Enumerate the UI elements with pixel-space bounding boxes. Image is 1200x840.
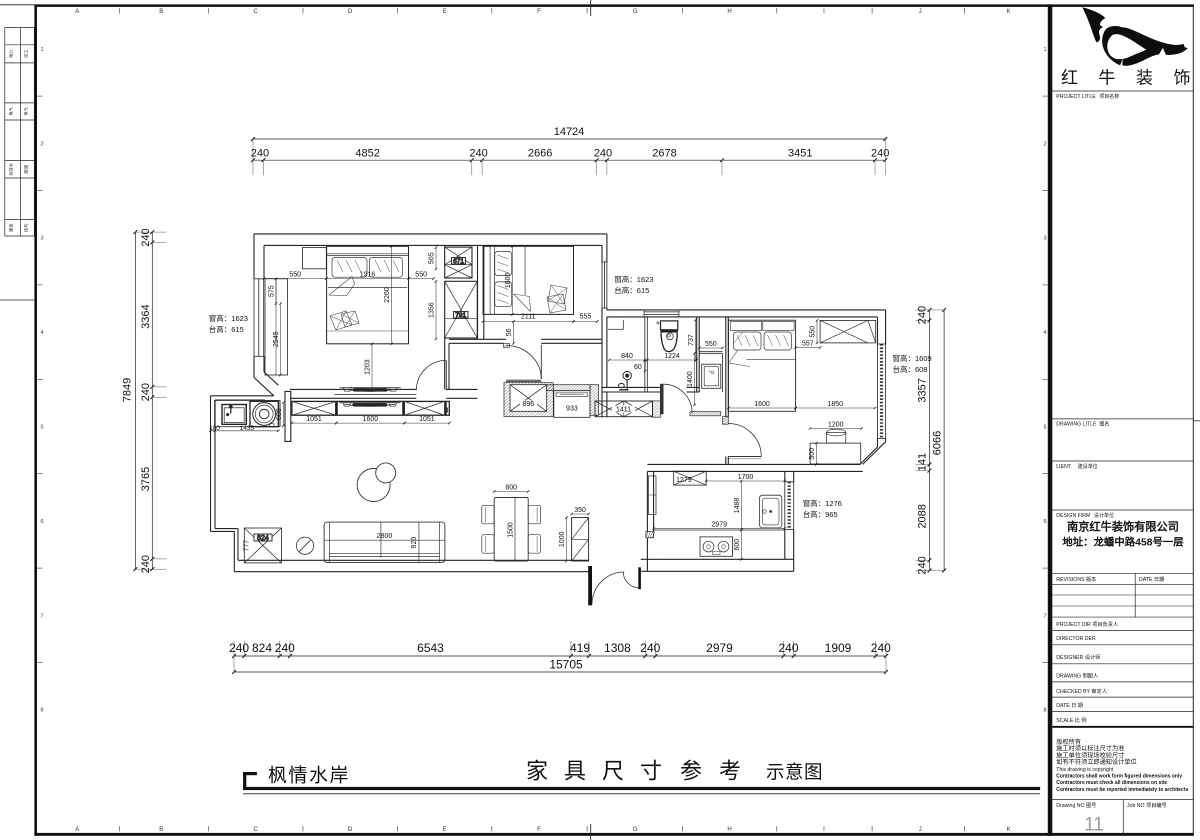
svg-text:地址：龙蟠中路458号一层: 地址：龙蟠中路458号一层 (1062, 536, 1184, 549)
svg-text:575: 575 (269, 285, 276, 297)
svg-text:K: K (1007, 827, 1011, 833)
svg-text:800: 800 (505, 485, 517, 492)
svg-text:F: F (537, 9, 541, 15)
svg-text:如有不符须立即通知设计单位: 如有不符须立即通知设计单位 (1056, 758, 1136, 766)
svg-text:DESIGNER 设计师: DESIGNER 设计师 (1056, 653, 1100, 661)
svg-text:505: 505 (429, 252, 436, 264)
svg-text:240: 240 (140, 228, 152, 246)
svg-text:7: 7 (41, 613, 44, 619)
svg-text:2979: 2979 (711, 521, 727, 528)
svg-text:2260: 2260 (384, 287, 391, 303)
svg-text:2: 2 (41, 141, 44, 147)
svg-text:1400: 1400 (687, 371, 694, 387)
svg-text:8: 8 (41, 708, 44, 714)
svg-text:1000: 1000 (559, 531, 566, 547)
svg-text:240: 240 (275, 641, 295, 655)
svg-text:C: C (254, 9, 259, 15)
svg-text:DATE 日 期: DATE 日 期 (1056, 702, 1083, 709)
svg-text:J: J (919, 827, 922, 833)
svg-text:1916: 1916 (360, 272, 376, 279)
svg-text:寸: 寸 (640, 759, 662, 784)
svg-text:DRAWING LITLE: DRAWING LITLE (1056, 422, 1097, 428)
svg-text:1909: 1909 (825, 641, 852, 655)
svg-text:4852: 4852 (355, 148, 379, 160)
svg-text:1600: 1600 (754, 401, 770, 408)
svg-text:7849: 7849 (121, 378, 133, 402)
svg-text:737: 737 (688, 334, 695, 346)
svg-text:台高：615: 台高：615 (209, 324, 244, 334)
svg-text:竣工: 竣工 (22, 50, 29, 58)
svg-text:Job NO 项目编号: Job NO 项目编号 (1127, 801, 1167, 809)
svg-text:550: 550 (810, 326, 817, 338)
svg-text:南京红牛装饰有限公司: 南京红牛装饰有限公司 (1067, 520, 1179, 534)
svg-text:240: 240 (594, 148, 612, 160)
svg-text:窗高：1609: 窗高：1609 (893, 353, 932, 363)
svg-text:933: 933 (566, 406, 578, 413)
svg-text:920: 920 (411, 537, 418, 549)
svg-text:2800: 2800 (377, 533, 393, 540)
svg-text:896: 896 (522, 401, 534, 408)
svg-text:3765: 3765 (140, 467, 152, 491)
svg-text:550: 550 (415, 272, 427, 279)
svg-text:2111: 2111 (521, 314, 536, 321)
svg-text:3: 3 (1043, 236, 1046, 242)
svg-text:1200: 1200 (828, 422, 844, 429)
svg-text:550: 550 (705, 341, 717, 348)
svg-text:777: 777 (244, 540, 251, 552)
svg-text:窗高：1623: 窗高：1623 (209, 313, 248, 323)
svg-text:电力: 电力 (8, 50, 15, 58)
svg-text:419: 419 (570, 641, 590, 655)
svg-text:240: 240 (871, 148, 889, 160)
svg-text:1700: 1700 (738, 474, 754, 481)
svg-text:5: 5 (41, 425, 44, 431)
svg-text:8: 8 (1043, 708, 1046, 714)
svg-text:240: 240 (871, 641, 891, 655)
svg-text:Drawing NO 图号: Drawing NO 图号 (1056, 802, 1096, 809)
svg-text:G: G (633, 827, 638, 833)
svg-text:B: B (159, 9, 163, 15)
svg-text:PROJECT DIR 项目负责人: PROJECT DIR 项目负责人 (1056, 620, 1118, 628)
svg-text:J: J (919, 9, 922, 15)
svg-text:B: B (159, 827, 163, 833)
svg-text:240: 240 (140, 555, 152, 573)
svg-text:E: E (443, 9, 447, 15)
svg-text:电气: 电气 (8, 106, 14, 115)
svg-text:550: 550 (289, 272, 301, 279)
svg-text:240: 240 (140, 383, 152, 401)
svg-text:给排水: 给排水 (8, 162, 15, 175)
svg-text:DRAWING 制图人: DRAWING 制图人 (1056, 672, 1098, 680)
svg-text:555: 555 (580, 314, 592, 321)
svg-text:1: 1 (41, 47, 44, 53)
svg-text:2979: 2979 (706, 641, 733, 655)
svg-text:141: 141 (917, 453, 929, 471)
svg-text:1203: 1203 (365, 359, 372, 375)
svg-text:2545: 2545 (273, 331, 280, 347)
svg-text:结构: 结构 (22, 224, 29, 232)
svg-text:1411: 1411 (616, 406, 631, 413)
svg-text:设计单位: 设计单位 (1094, 512, 1114, 519)
svg-text:240: 240 (469, 148, 487, 160)
svg-text:暖通: 暖通 (22, 164, 29, 173)
svg-text:1308: 1308 (604, 641, 631, 655)
svg-text:REVISIONS 版本: REVISIONS 版本 (1056, 575, 1096, 583)
svg-text:6066: 6066 (932, 431, 944, 455)
svg-text:3: 3 (41, 236, 44, 242)
svg-text:尺: 尺 (602, 759, 624, 784)
svg-text:1224: 1224 (664, 353, 680, 360)
svg-text:5: 5 (1043, 425, 1046, 431)
svg-text:240: 240 (251, 148, 269, 160)
svg-text:100: 100 (209, 425, 220, 432)
svg-text:台高：608: 台高：608 (893, 364, 928, 374)
svg-text:红: 红 (1061, 69, 1078, 88)
svg-text:2: 2 (1043, 141, 1046, 147)
svg-text:E: E (443, 827, 447, 833)
svg-text:This drawing is copyright: This drawing is copyright (1056, 767, 1114, 773)
svg-text:1356: 1356 (429, 302, 436, 318)
svg-text:2088: 2088 (917, 504, 929, 528)
svg-text:PROJECT LITLE: PROJECT LITLE (1056, 94, 1096, 100)
svg-text:4: 4 (1043, 330, 1046, 336)
svg-text:DIRECTOR DER: DIRECTOR DER (1056, 636, 1096, 642)
svg-text:牛: 牛 (1099, 69, 1116, 88)
svg-text:电气: 电气 (22, 106, 28, 115)
svg-text:图名: 图名 (1099, 421, 1109, 428)
svg-text:840: 840 (621, 353, 633, 360)
svg-text:557: 557 (802, 341, 814, 348)
svg-text:项目名称: 项目名称 (1099, 93, 1119, 100)
svg-text:6543: 6543 (417, 641, 444, 655)
svg-text:240: 240 (640, 641, 660, 655)
svg-text:台高：615: 台高：615 (614, 285, 649, 295)
svg-text:G: G (633, 9, 638, 15)
svg-text:56: 56 (506, 328, 513, 336)
svg-text:Contractors must check all dim: Contractors must check all dimensions on… (1056, 780, 1167, 786)
svg-text:2678: 2678 (652, 148, 676, 160)
svg-text:350: 350 (574, 507, 586, 514)
svg-text:1488: 1488 (734, 498, 741, 514)
svg-text:1435: 1435 (240, 425, 255, 432)
svg-text:15705: 15705 (549, 658, 583, 672)
svg-text:6: 6 (41, 519, 44, 525)
svg-text:11: 11 (1084, 815, 1104, 836)
svg-text:2666: 2666 (528, 148, 552, 160)
svg-text:家: 家 (526, 759, 548, 784)
svg-text:824: 824 (257, 535, 269, 542)
svg-text:H: H (727, 9, 731, 15)
svg-text:H: H (727, 827, 731, 833)
svg-text:671: 671 (453, 258, 464, 265)
svg-text:建筑: 建筑 (8, 223, 15, 232)
svg-text:600: 600 (734, 539, 741, 551)
svg-text:240: 240 (229, 641, 249, 655)
svg-text:窗高：1623: 窗高：1623 (614, 274, 653, 284)
svg-text:90: 90 (444, 407, 449, 413)
svg-text:14724: 14724 (554, 126, 585, 138)
svg-text:6: 6 (1043, 519, 1046, 525)
svg-text:Contractors shall work form fi: Contractors shall work form figured dime… (1056, 774, 1182, 780)
svg-text:装: 装 (1136, 69, 1153, 88)
svg-text:1279: 1279 (676, 477, 692, 484)
svg-text:60: 60 (634, 364, 642, 371)
svg-text:500: 500 (809, 448, 816, 460)
svg-text:7: 7 (1043, 613, 1046, 619)
svg-text:D: D (348, 827, 353, 833)
svg-text:D: D (348, 9, 353, 15)
svg-text:1500: 1500 (508, 522, 515, 538)
svg-text:1: 1 (1043, 47, 1046, 53)
svg-text:CHECKED BY 审定人: CHECKED BY 审定人 (1056, 687, 1107, 695)
svg-text:A: A (75, 827, 79, 833)
svg-text:窗高：1276: 窗高：1276 (803, 498, 842, 508)
svg-text:3451: 3451 (788, 148, 812, 160)
svg-text:1600: 1600 (505, 272, 512, 288)
svg-text:824: 824 (252, 641, 272, 655)
svg-text:F: F (537, 827, 541, 833)
svg-text:240: 240 (917, 306, 929, 324)
svg-text:Contractors must be reported i: Contractors must be reported immediately… (1056, 787, 1188, 793)
svg-text:1600: 1600 (363, 416, 379, 423)
svg-text:3364: 3364 (140, 304, 152, 328)
svg-text:DESIGN FIRM: DESIGN FIRM (1056, 513, 1090, 519)
svg-text:SCALE 比 例: SCALE 比 例 (1056, 716, 1086, 724)
svg-text:枫情水岸: 枫情水岸 (268, 765, 350, 787)
svg-text:1850: 1850 (828, 401, 844, 408)
svg-text:600: 600 (276, 408, 283, 420)
svg-text:791: 791 (455, 312, 466, 319)
svg-text:参: 参 (680, 759, 702, 784)
svg-text:建设单位: 建设单位 (1078, 463, 1098, 470)
svg-text:具: 具 (564, 759, 586, 784)
svg-text:DATE 日期: DATE 日期 (1139, 576, 1164, 583)
svg-text:240: 240 (917, 556, 929, 574)
svg-text:240: 240 (778, 641, 798, 655)
svg-text:1051: 1051 (419, 416, 435, 423)
svg-text:考: 考 (719, 759, 741, 784)
svg-text:LIENT: LIENT (1056, 464, 1072, 470)
svg-text:1051: 1051 (306, 416, 322, 423)
svg-text:示意图: 示意图 (766, 762, 823, 783)
svg-text:3357: 3357 (917, 378, 929, 402)
svg-text:饰: 饰 (1174, 69, 1191, 88)
svg-text:K: K (1007, 9, 1011, 15)
svg-text:C: C (254, 827, 259, 833)
svg-text:4: 4 (41, 330, 44, 336)
svg-text:A: A (75, 9, 79, 15)
svg-text:台高：965: 台高：965 (803, 509, 838, 519)
